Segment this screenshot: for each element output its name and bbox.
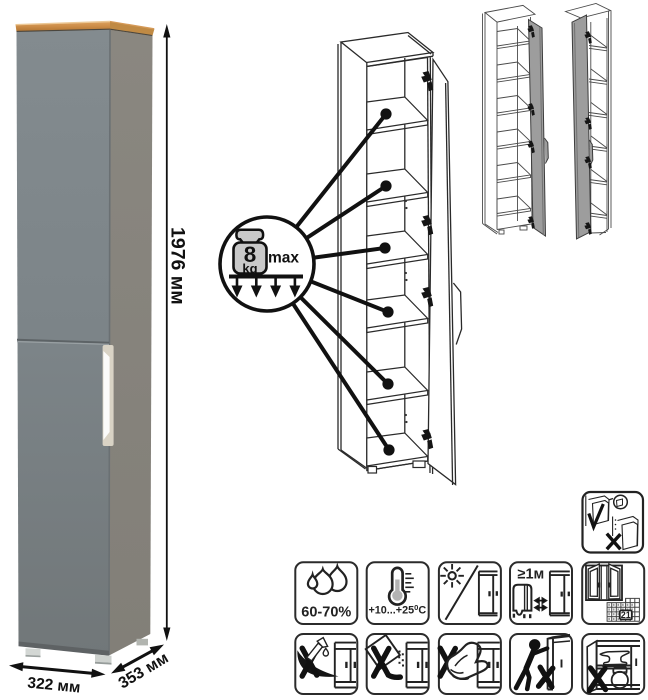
svg-text:60-70%: 60-70% xyxy=(301,605,351,621)
svg-text:1976 мм: 1976 мм xyxy=(167,227,189,305)
svg-text:max: max xyxy=(268,250,299,267)
svg-text:≥1м: ≥1м xyxy=(518,567,545,583)
svg-text:kg: kg xyxy=(242,261,257,276)
svg-text:+10...+250C: +10...+250C xyxy=(368,603,426,616)
svg-text:21: 21 xyxy=(621,610,631,620)
svg-text:322 мм: 322 мм xyxy=(27,675,81,697)
